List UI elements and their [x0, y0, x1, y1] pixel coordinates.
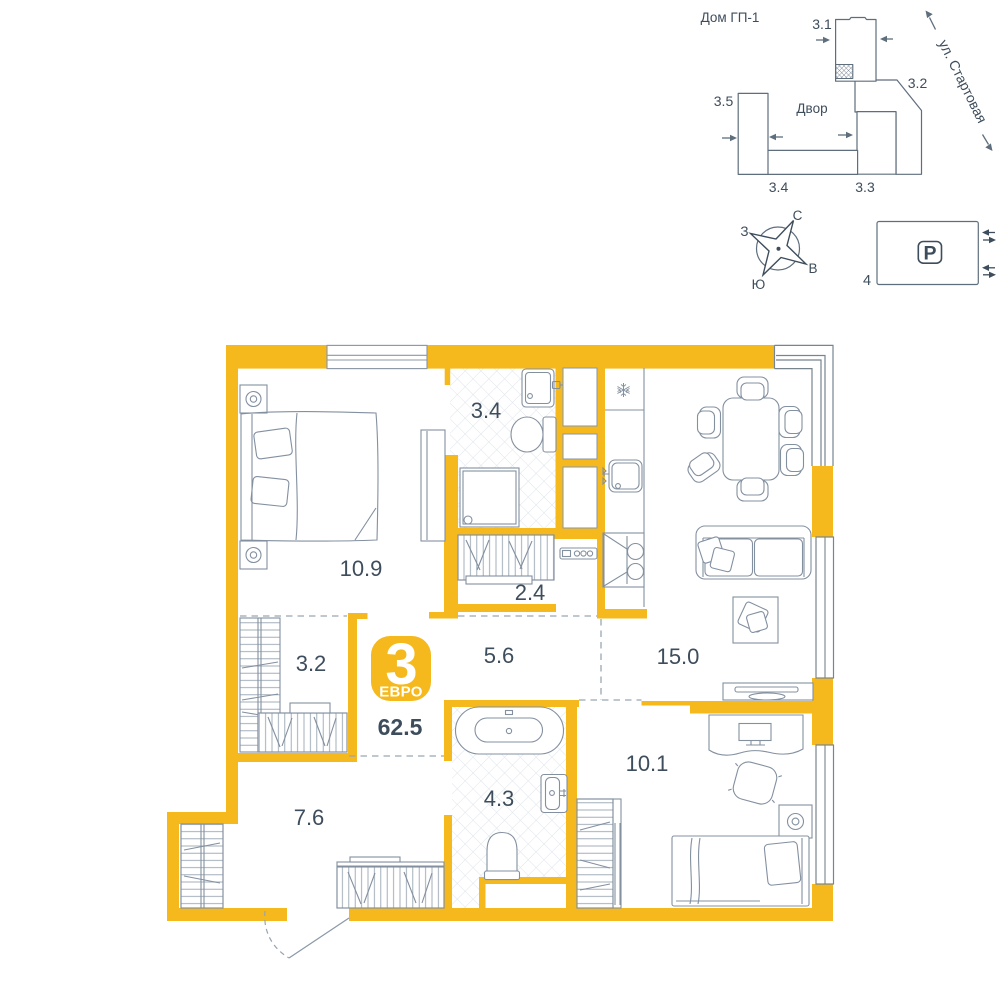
- svg-text:2.4: 2.4: [515, 580, 546, 605]
- svg-text:3.1: 3.1: [812, 16, 832, 32]
- svg-text:3.4: 3.4: [769, 179, 789, 195]
- svg-text:5.6: 5.6: [484, 643, 515, 668]
- svg-text:4.3: 4.3: [484, 786, 515, 811]
- svg-text:В: В: [808, 261, 817, 276]
- svg-text:3.4: 3.4: [471, 398, 502, 423]
- svg-text:3.5: 3.5: [714, 93, 734, 109]
- svg-text:ул. Стартовая: ул. Стартовая: [936, 37, 991, 126]
- svg-text:С: С: [793, 208, 803, 223]
- svg-text:P: P: [923, 243, 936, 265]
- svg-text:3.3: 3.3: [855, 179, 875, 195]
- svg-text:3.2: 3.2: [908, 75, 928, 91]
- svg-text:10.1: 10.1: [626, 751, 669, 776]
- svg-text:Ю: Ю: [752, 277, 766, 292]
- svg-text:4: 4: [863, 273, 871, 289]
- svg-text:15.0: 15.0: [657, 644, 700, 669]
- svg-text:Двор: Двор: [796, 101, 827, 116]
- svg-text:Дом ГП-1: Дом ГП-1: [701, 10, 760, 25]
- svg-text:62.5: 62.5: [378, 714, 423, 740]
- svg-text:3.2: 3.2: [296, 651, 327, 676]
- svg-text:З: З: [740, 224, 748, 239]
- svg-text:ЕВРО: ЕВРО: [379, 684, 423, 701]
- svg-text:10.9: 10.9: [340, 556, 383, 581]
- svg-text:7.6: 7.6: [294, 805, 325, 830]
